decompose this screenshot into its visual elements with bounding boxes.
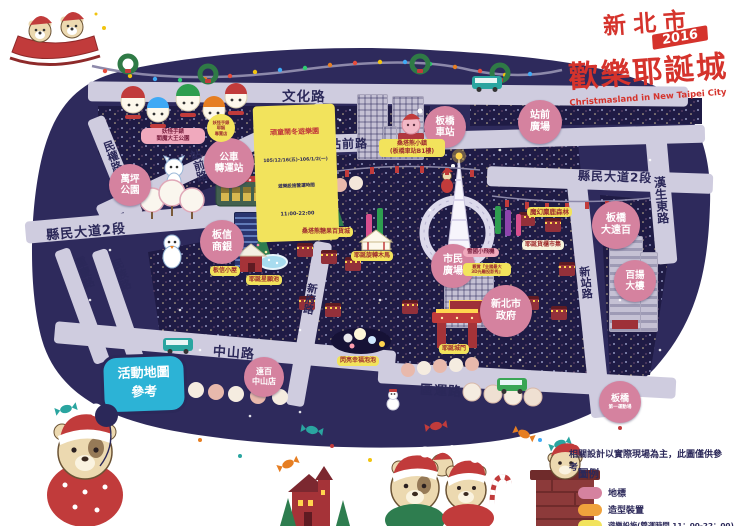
market-stall [402,300,418,314]
legend-item-rides: 遊樂設施(營運時間 11：00-22：00) [578,520,738,526]
label-light-show-note: 觀賞『全國最大 3D光雕投影秀』 [463,263,511,276]
label-gate: 耶誕城門 [439,344,469,354]
label-snow-plane: 雪國小飛機 [463,248,499,257]
playground-line2: 遊樂設施營運時間 [257,183,335,192]
legend: 圖例 地標 造型裝置 遊樂設施(營運時間 11：00-22：00) [578,466,738,526]
label-santa-bear-town: 桑塔熊小鎮 (板橋車站B1樓) [379,139,445,157]
label-candy-department: 桑塔熊糖果百貨城 [299,227,353,237]
legend-label-rides: 遊樂設施(營運時間 11：00-22：00) [608,521,734,526]
legend-label-decoration: 造型裝置 [608,503,644,516]
road-label-xinzhan: 新站路 [575,265,594,299]
baiyang-sign [612,320,638,329]
pin-mega-far-eastern: 板橋 大遠百 [592,201,640,249]
legend-swatch-pink [578,487,602,499]
label-bubble: 閃亮幸福泡泡 [337,356,379,366]
market-stall [297,243,313,257]
label-magic-deer-forest: 魔幻麋鹿森林 [527,207,572,217]
road-label-wenhua: 文化路 [282,85,326,105]
pin-banxin-bank: 板信 商銀 [200,220,244,264]
legend-swatch-orange [578,504,602,516]
label-yokai-shop: 妖怪手錶 耶誕 專賣店 [207,114,235,142]
label-playground-box: 頑童鬧冬遊樂園 105/12/16(五)-106/1/2(一) 遊樂設施營運時間… [253,104,340,242]
pin-stadium: 板橋 第一運動場 [599,381,641,423]
legend-title: 圖例 [578,466,738,481]
market-stall [325,303,341,317]
pin-city-hall: 新北市 政府 [480,285,532,337]
legend-label-landmark: 地標 [608,486,626,499]
pin-fe-zhongshan: 遠百 中山店 [244,357,284,397]
pin-baiyang-tower: 百揚 大樓 [614,260,656,302]
label-container-market: 耶誕貨櫃市集 [522,240,564,250]
christmasland-map-poster: 文化路 站前路 站前路 縣民大道2段 縣民大道2段 漢生東路 新站路 新府路 民… [0,0,740,526]
balloon-icon [95,404,118,427]
container-market-stall [545,218,561,232]
label-banxin-house: 板信小屋 [210,266,240,276]
label-wish-pool: 耶誕星願池 [246,275,282,285]
pin-stadium-line2: 第一運動場 [609,405,632,411]
title-city: 新北市 [555,0,740,44]
road-label-zhongshan: 中山路 [212,341,255,363]
legend-item-landmark: 地標 [578,486,738,499]
playground-hours: 11:00-22:00 [258,210,336,219]
legend-item-decoration: 造型裝置 [578,503,738,516]
playground-dates: 105/12/16(五)-106/1/2(一) [256,156,334,165]
road-label-xianmin-east: 縣民大道2段 [578,167,653,187]
market-stall [321,250,337,264]
container-market-stall [559,262,575,276]
pin-bus-terminal: 公車 轉運站 [204,138,254,188]
legend-swatch-yellow [578,520,602,526]
poster-title: 新北市 2016 歡樂耶誕城 Christmasland in New Taip… [556,4,740,103]
playground-title: 頑童鬧冬遊樂園 [255,126,333,138]
market-stall [551,306,567,320]
road-label-quyun: 區運路 [420,379,463,400]
label-carousel: 耶誕旋轉木馬 [351,251,393,261]
pin-wanping-park: 萬坪 公園 [109,164,151,206]
label-yokai-park: 妖怪手錶 閻魔大王公園 [141,128,205,144]
pin-stadium-line1: 板橋 [611,394,629,405]
